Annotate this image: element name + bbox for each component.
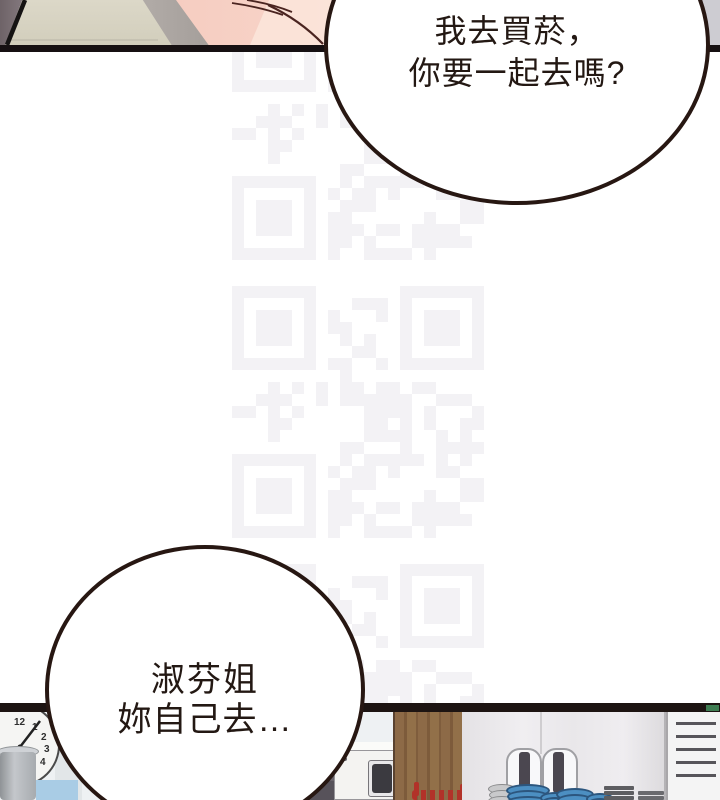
drawer-slot <box>676 722 716 725</box>
drawer-cabinet <box>666 712 720 800</box>
comic-page: 12 1 2 3 4 <box>0 0 720 800</box>
green-accent <box>706 705 719 711</box>
dark-tray <box>604 786 634 790</box>
red-utensil <box>414 782 419 796</box>
diagonal-frame-line <box>0 0 40 45</box>
dark-tray <box>638 796 664 800</box>
drawer-slot <box>676 735 716 738</box>
speech-text-line: 你要一起去嗎? <box>328 55 706 91</box>
drawer-slot <box>676 774 716 777</box>
dark-tray <box>604 796 634 800</box>
wooden-wall-panel <box>393 712 462 800</box>
speech-text-line: 我去買菸， <box>328 13 706 49</box>
skin-contour-lines <box>200 0 340 45</box>
drawer-slot <box>676 761 716 764</box>
blue-counter-tile <box>36 780 78 800</box>
drawer-slot <box>676 748 716 751</box>
speech-text-line: 妳自己去… <box>49 701 361 739</box>
dark-tray <box>638 791 664 795</box>
canister-jar <box>0 752 36 800</box>
qr-watermark-tile <box>232 286 484 538</box>
fridge-door-split <box>540 712 542 754</box>
microwave-door-window <box>372 764 392 793</box>
pitcher-handle <box>553 752 564 793</box>
dark-tray <box>604 791 634 795</box>
speech-text-line: 淑芬姐 <box>49 661 361 699</box>
